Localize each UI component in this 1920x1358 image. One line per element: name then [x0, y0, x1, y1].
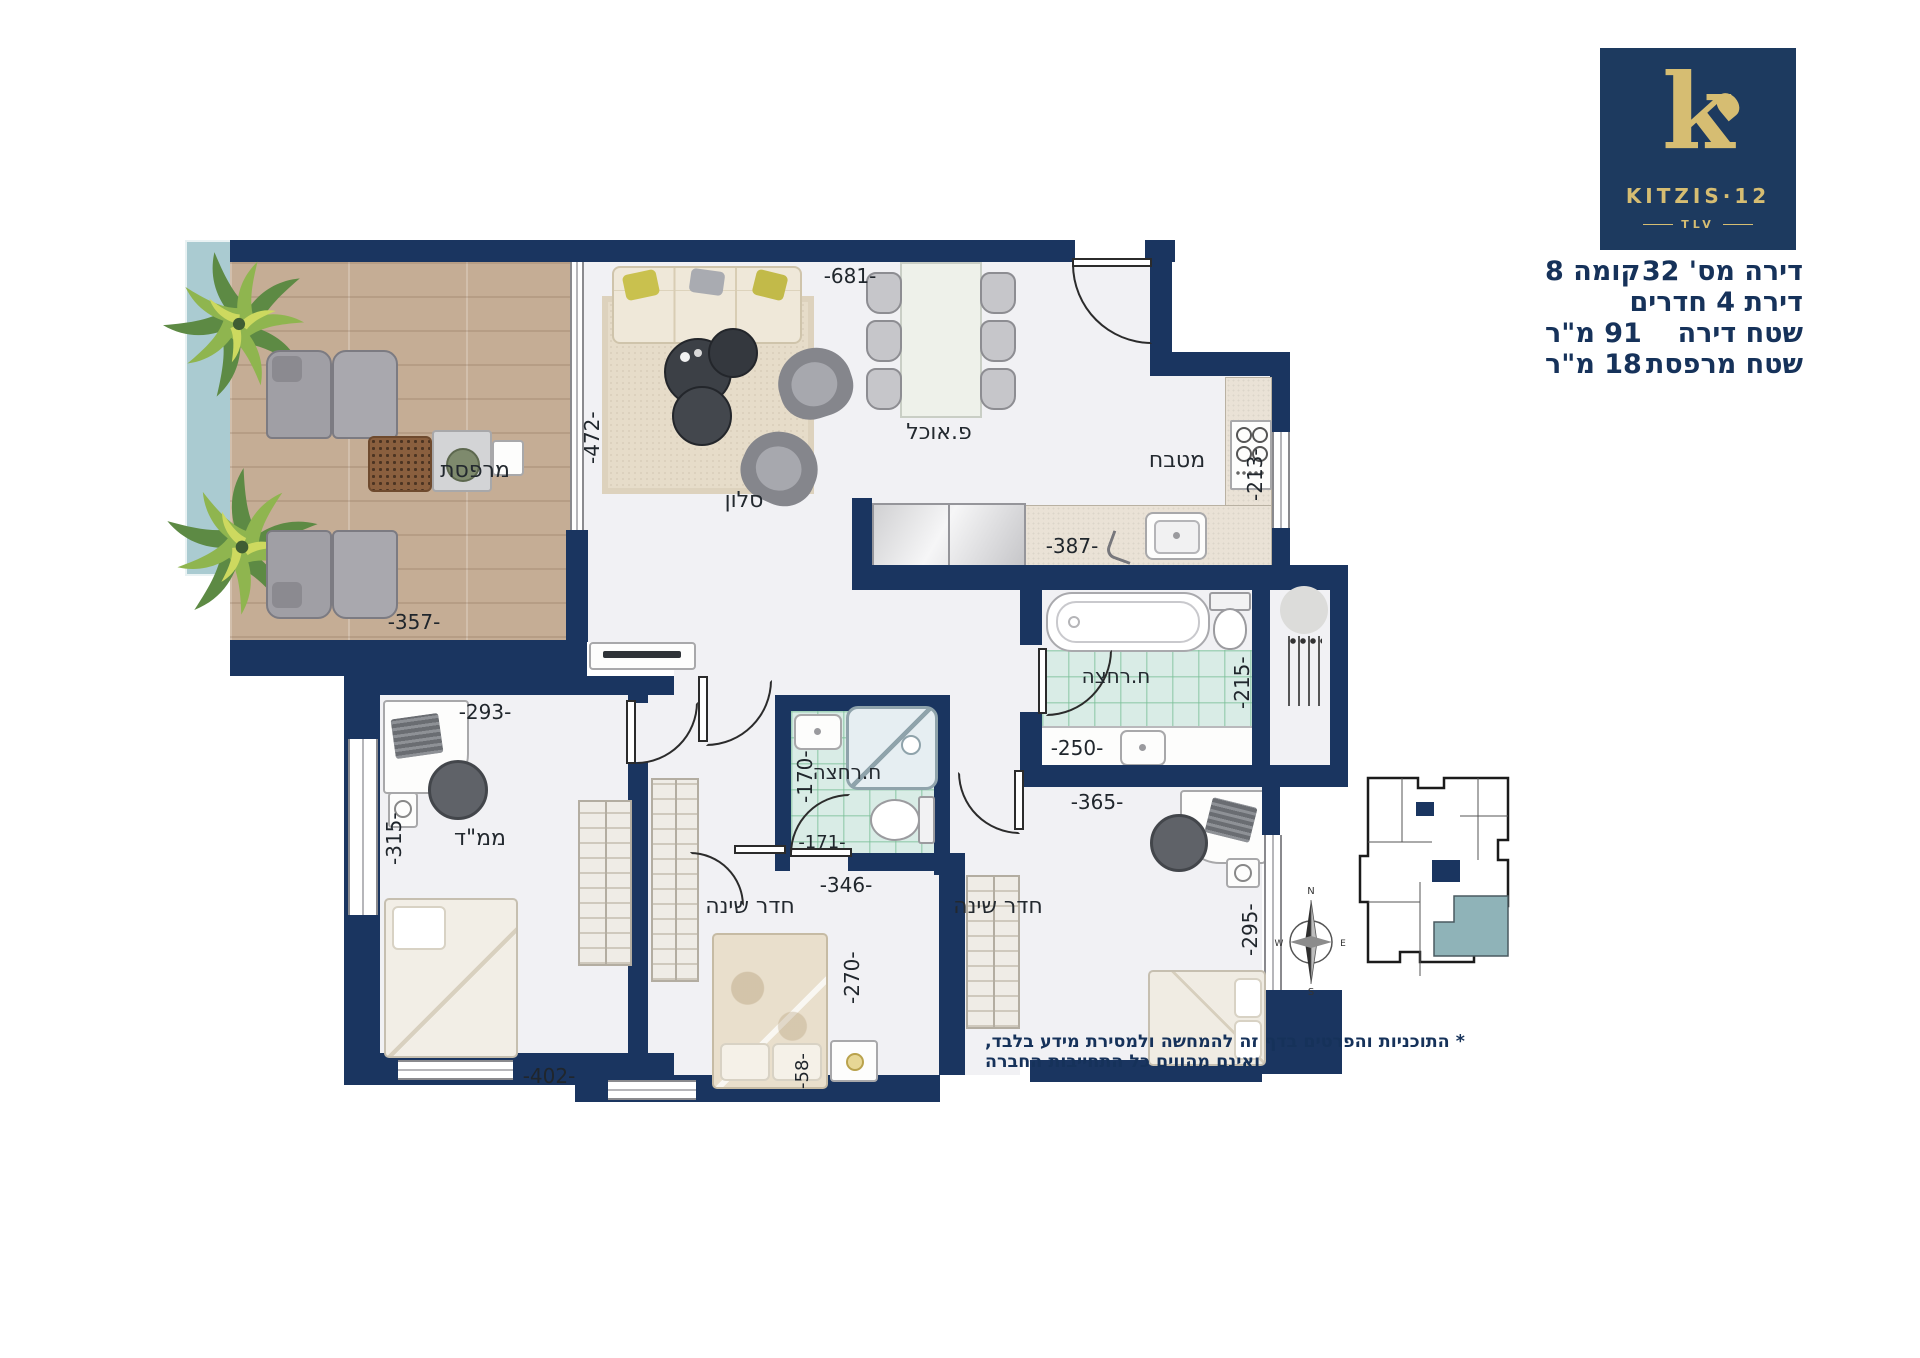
outside-entry-nook: [1172, 262, 1270, 352]
dim-balcony-bottom: -357-: [378, 610, 450, 634]
disclaimer-text: * התוכניות והפרטים בדף זה להמחשה ולמסירת…: [985, 1032, 1501, 1072]
dim-shower-left: -170-: [793, 748, 817, 806]
room-label-bedroom-middle: חדר שינה: [698, 894, 802, 919]
table-decor: [694, 349, 702, 357]
sofa-pillow: [688, 268, 725, 296]
coffee-table: [672, 386, 732, 446]
dim-bedroom-right-top: -365-: [1066, 790, 1128, 814]
single-bed: [384, 898, 518, 1058]
sofa-pillow: [622, 269, 661, 302]
wall-entry-stub-side: [1150, 262, 1172, 354]
wall-bath-left-upper: [1020, 590, 1042, 645]
balcony-sliding-window: [570, 262, 584, 530]
wardrobe-rail: [675, 780, 677, 980]
room-label-dining: פ.אוכל: [896, 420, 982, 445]
dim-safe-room-top: -293-: [452, 700, 518, 724]
burner: [1252, 427, 1268, 443]
apartment-info: דירה מס' 32 קומה 8 דירת 4 חדרים שטח דירה…: [1545, 256, 1803, 380]
dim-kitchen-right: -213-: [1243, 445, 1267, 505]
svg-text:W: W: [1275, 939, 1284, 949]
info-label: דירה מס' 32: [1642, 256, 1803, 287]
lounger-pillow: [272, 582, 302, 608]
bath-sink: [1120, 730, 1166, 766]
wall-outer-right: [1330, 565, 1348, 787]
info-row: דירה מס' 32 קומה 8: [1545, 256, 1803, 287]
wall-fridge-stub: [852, 498, 872, 568]
dim-top: -681-: [820, 264, 880, 288]
building-key-plan: [1358, 772, 1536, 987]
wall-mamad-top: [344, 676, 674, 695]
wall-kitchen-right-upper: [1270, 352, 1290, 432]
bathtub: [1046, 592, 1210, 652]
logo-divider: [1643, 224, 1673, 225]
wall-balcony-stub: [566, 530, 588, 642]
bed-pillow: [392, 906, 446, 950]
utility-pipes-icon: [1288, 636, 1322, 706]
toilet-tank: [918, 796, 935, 844]
fridge-divider: [948, 505, 950, 565]
shower-sink: [794, 714, 842, 750]
wall-bath-right: [1252, 590, 1270, 767]
logo-city: TLV: [1600, 218, 1796, 231]
tv-console: [589, 642, 696, 670]
wall-right-bedroom-upper: [1262, 787, 1280, 835]
laptop-icon: [1204, 797, 1257, 843]
dim-bedroom-mid-right: -270-: [840, 946, 864, 1010]
laptop-icon: [390, 713, 443, 759]
floor-plan-sheet: מרפסת סלון פ.אוכל מטבח ח.רחצה ח.רחצה ממ"…: [0, 0, 1920, 1358]
dining-chair: [866, 320, 902, 362]
sofa-pillow: [751, 269, 788, 302]
info-row: שטח דירה 91 מ"ר: [1545, 318, 1803, 349]
dining-chair: [980, 368, 1016, 410]
dining-chair: [866, 368, 902, 410]
svg-text:N: N: [1307, 886, 1314, 897]
lamp-icon: [846, 1053, 864, 1071]
dim-shower-bottom: -171-: [794, 832, 850, 853]
info-row: דירת 4 חדרים: [1545, 287, 1803, 318]
lounger: [332, 530, 398, 619]
desk-items: [1226, 858, 1260, 888]
room-label-bedroom-right: חדר שינה: [946, 894, 1050, 919]
boiler-icon: [1280, 586, 1328, 634]
mamad-window: [348, 739, 378, 915]
wall-kitchen-right-lower: [1270, 528, 1290, 568]
info-value: קומה 8: [1545, 256, 1640, 287]
room-label-bath-main: ח.רחצה: [1075, 664, 1157, 688]
dim-bottom-left: -402-: [518, 1064, 580, 1088]
dim-bedroom-right-side: -295-: [1238, 898, 1262, 962]
logo-letter: k: [1600, 50, 1796, 173]
room-label-balcony: מרפסת: [415, 458, 535, 483]
info-label: שטח דירה: [1678, 318, 1803, 349]
clock-icon: [1234, 864, 1252, 882]
dim-bath-bottom: -250-: [1048, 736, 1106, 760]
room-label-bath-shower: ח.רחצה: [806, 760, 888, 784]
wall-bath-bottom: [1020, 765, 1342, 787]
kitchen-sink: [1145, 512, 1207, 560]
dim-safe-room-left: -315-: [382, 806, 406, 872]
lounger: [332, 350, 398, 439]
svg-text:S: S: [1308, 987, 1314, 996]
dim-kitchen-counter: -387-: [1040, 534, 1104, 558]
info-value: 18 מ"ר: [1545, 349, 1642, 380]
kitchen-window: [1272, 432, 1290, 528]
sink-drain: [1173, 532, 1180, 539]
mamad-bottom-window: [398, 1060, 513, 1080]
bed-pillow: [1234, 978, 1262, 1018]
sofa: [612, 266, 802, 344]
dining-table: [900, 262, 982, 418]
toilet-bowl: [1213, 608, 1247, 650]
sink-drain: [1139, 744, 1146, 751]
lounger-pillow: [272, 356, 302, 382]
brand-logo: k KITZIS·12 TLV: [1600, 48, 1796, 250]
room-label-safe-room: ממ"ד: [440, 826, 520, 851]
tv-icon: [603, 651, 681, 658]
info-label: שטח מרפסת: [1646, 349, 1803, 380]
logo-divider: [1723, 224, 1753, 225]
wall-living-bottom: [230, 640, 587, 676]
burner: [1236, 427, 1252, 443]
coffee-table: [708, 328, 758, 378]
armchair-cushion: [786, 356, 843, 412]
wall-bath-left-lower: [1020, 712, 1042, 767]
dim-bottom-mid: -58-: [792, 1048, 813, 1094]
mamad-door-leaf: [626, 700, 636, 764]
wall-mid-right: [939, 853, 965, 1075]
fridge: [872, 503, 1026, 567]
table-decor: [680, 352, 690, 362]
sink-drain: [814, 728, 821, 735]
logo-city-text: TLV: [1681, 218, 1715, 231]
bed-pillow: [720, 1043, 770, 1081]
wardrobe-rail: [605, 802, 607, 964]
wall-below-counter: [852, 565, 1340, 590]
toilet-bowl: [870, 799, 920, 841]
room-label-living: סלון: [712, 488, 776, 513]
info-row: שטח מרפסת 18 מ"ר: [1545, 349, 1803, 380]
lounge-chairs: [266, 350, 396, 435]
mid-bedroom-door-leaf: [734, 845, 786, 854]
office-chair: [428, 760, 488, 820]
dim-living-left: -472-: [580, 400, 604, 476]
shower-head-icon: [901, 735, 921, 755]
mid-bedroom-window: [608, 1080, 696, 1100]
dim-bedroom-mid-top: -346-: [816, 873, 876, 897]
dim-bath-right: -215-: [1230, 652, 1254, 714]
bathtub-drain: [1068, 616, 1080, 628]
room-label-kitchen: מטבח: [1135, 448, 1219, 473]
lounge-chairs: [266, 530, 396, 615]
info-value: 91 מ"ר: [1545, 318, 1642, 349]
wall-kitchen-top: [1150, 352, 1290, 376]
info-label: דירת 4 חדרים: [1629, 287, 1803, 318]
nightstand: [830, 1040, 878, 1082]
dining-chair: [980, 272, 1016, 314]
toilet: [1206, 592, 1252, 650]
dining-chair: [980, 320, 1016, 362]
compass-icon: N S W E: [1272, 884, 1350, 996]
wall-living-top: [570, 240, 1075, 262]
office-chair: [1150, 814, 1208, 872]
logo-brand-name: KITZIS·12: [1600, 184, 1796, 208]
toilet-side: [866, 794, 932, 844]
svg-text:E: E: [1340, 939, 1346, 949]
wardrobe: [578, 800, 632, 966]
